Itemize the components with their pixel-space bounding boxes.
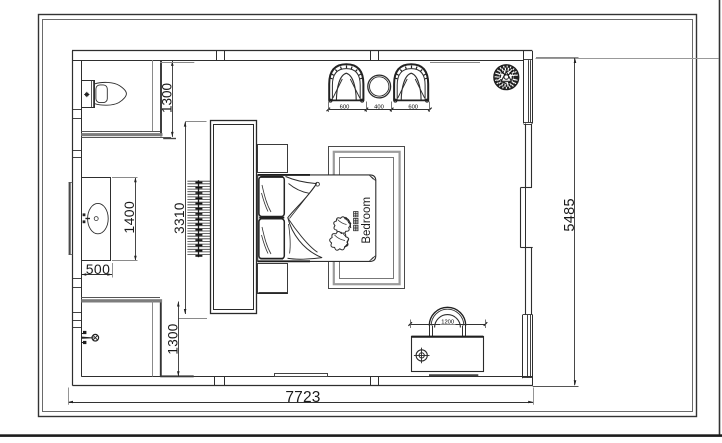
svg-text:600: 600: [340, 104, 350, 110]
svg-text:1300: 1300: [160, 83, 175, 113]
svg-text:3310: 3310: [172, 202, 187, 234]
svg-text:600: 600: [408, 104, 418, 110]
svg-text:1400: 1400: [121, 201, 137, 234]
svg-text:5485: 5485: [562, 198, 578, 231]
svg-text:Bedroom: Bedroom: [361, 197, 373, 244]
svg-text:7723: 7723: [285, 389, 320, 406]
svg-text:400: 400: [374, 104, 384, 110]
svg-text:1300: 1300: [165, 323, 180, 354]
svg-text:1200: 1200: [441, 319, 454, 325]
